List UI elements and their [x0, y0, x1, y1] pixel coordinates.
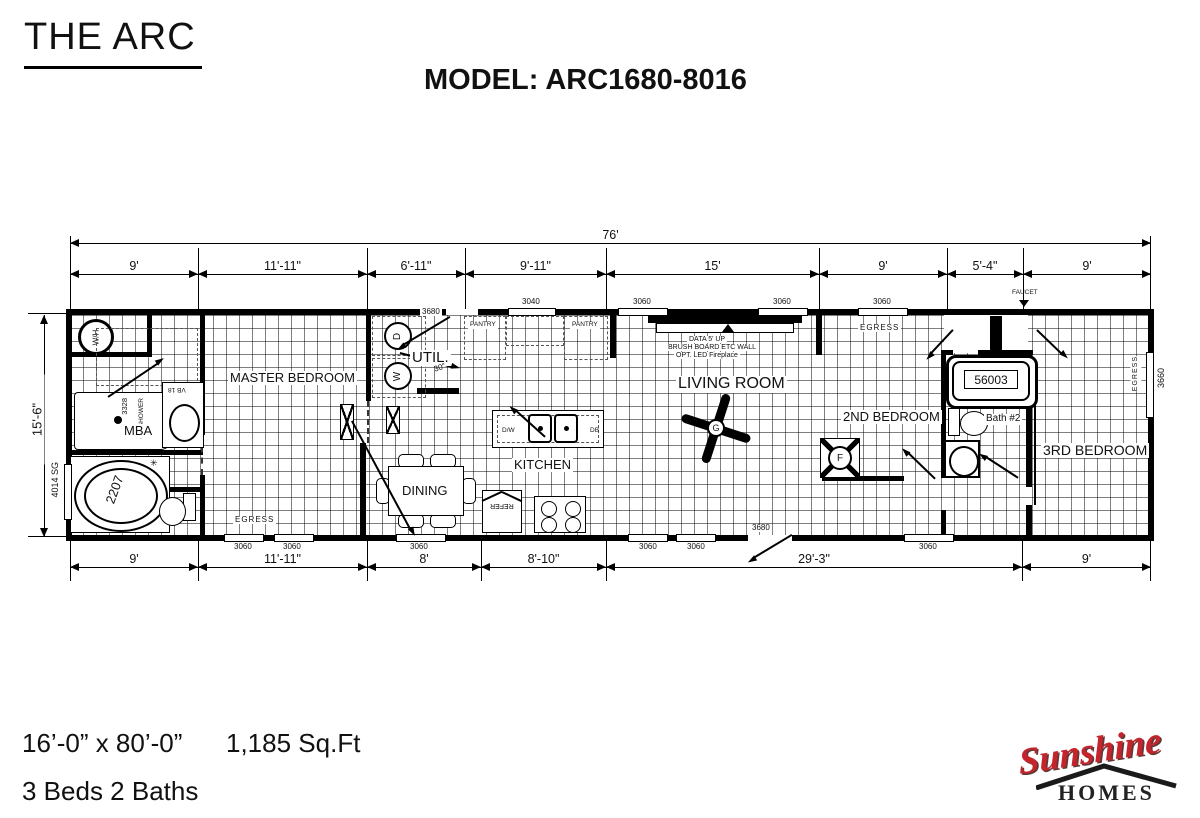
dim-bottom-6: 9' — [1022, 567, 1151, 568]
logo-sub-text: HOMES — [1058, 780, 1155, 806]
page-title: THE ARC — [24, 16, 202, 69]
faucet-label: FAUCET — [1010, 290, 1040, 297]
util-master-wall — [366, 313, 371, 401]
outer-wall-right — [1148, 309, 1154, 541]
bath2-toilet-tank — [948, 408, 960, 436]
tick — [819, 248, 820, 309]
tick — [367, 541, 368, 581]
db-label: DB — [588, 428, 601, 435]
room-label-master: MASTER BEDROOM — [228, 371, 357, 385]
win-label-3060-c: 3060 — [871, 298, 893, 306]
master-dining-wall — [360, 443, 366, 537]
tick — [606, 541, 607, 581]
win-label-3060-f: 3060 — [408, 543, 430, 551]
window-3060-master-a — [224, 534, 264, 542]
room-label-mba: MBA — [122, 424, 154, 438]
mba-master-wall-lower — [200, 475, 205, 537]
tick — [1022, 541, 1023, 581]
dining-chair-bottom-right — [430, 514, 456, 528]
refrigerator-label: REFER — [490, 502, 514, 509]
shower-drain — [114, 416, 122, 424]
tick — [606, 248, 607, 309]
dim-top-2: 11'-11" — [198, 274, 367, 275]
media-wall-bar — [648, 315, 802, 323]
tick — [465, 248, 466, 309]
tick — [28, 536, 66, 537]
window-3060-master-b — [274, 534, 314, 542]
bath2-bed3-wall-lower — [1026, 505, 1032, 537]
master-closet-front — [367, 401, 369, 443]
dim-top-3: 6'-11" — [367, 274, 465, 275]
win-label-3060-e: 3060 — [281, 543, 303, 551]
pantry-right-label: PANTRY — [570, 322, 600, 329]
mba-tub-wall — [68, 450, 203, 455]
burner-2 — [565, 501, 581, 517]
win-label-3680-rear: 3680 — [750, 524, 772, 532]
dim-overall-height-label: 15'-6" — [30, 375, 45, 465]
dim-overall-width: 76' — [70, 243, 1151, 244]
front-door-opening — [446, 309, 478, 315]
sink-right-drain — [564, 426, 569, 431]
mba-vanity-label: VB 18 — [168, 386, 186, 393]
egress-label-master: EGRESS — [233, 516, 276, 524]
bath2-left-wall-lower — [941, 510, 946, 537]
burner-1 — [541, 501, 557, 517]
dim-top-4: 9'-11" — [465, 274, 606, 275]
win-label-3060-b: 3060 — [771, 298, 793, 306]
room-label-dining: DINING — [400, 484, 450, 498]
egress-label-bed2: EGRESS — [858, 324, 901, 332]
window-3040 — [508, 308, 556, 316]
master-closet-shelf — [96, 328, 198, 386]
window-3060-living-a — [628, 534, 668, 542]
tick — [1150, 236, 1151, 309]
sunshine-homes-logo: Sunshine HOMES — [1000, 728, 1180, 814]
win-label-3060-g: 3060 — [637, 543, 659, 551]
footer-beds-baths: 3 Beds 2 Baths — [22, 776, 198, 807]
win-label-3060-a: 3060 — [631, 298, 653, 306]
media-marker-icon — [722, 324, 734, 332]
model-number: MODEL: ARC1680-8016 — [424, 64, 747, 97]
tick — [1150, 541, 1151, 581]
fan-hub: G — [707, 419, 725, 437]
mba-sink — [169, 404, 200, 442]
window-3060-living-right — [758, 308, 808, 316]
window-4014-tub — [64, 464, 72, 520]
living-bed2-wall — [816, 313, 822, 355]
fan-hub-label: G — [712, 423, 719, 433]
win-label-4014: 4014 SG — [50, 462, 60, 498]
window-3660-bed3 — [1146, 352, 1154, 418]
closet-rod-2 — [386, 406, 400, 434]
furnace: F — [828, 446, 852, 470]
window-3060-dining — [396, 534, 446, 542]
dim-bottom-3: 8' — [367, 567, 481, 568]
dim-top-7: 5'-4" — [947, 274, 1023, 275]
pantry-return-wall — [610, 313, 616, 358]
tick — [70, 236, 71, 309]
hallway-area — [944, 315, 1028, 353]
window-3060-hall — [904, 534, 954, 542]
burner-4 — [565, 517, 581, 533]
wall-note-3: OPT. LED Fireplace — [674, 352, 740, 359]
wall-note-2: BRUSH BOARD ETC WALL — [666, 344, 758, 351]
tick — [198, 248, 199, 309]
win-label-3060-h: 3060 — [685, 543, 707, 551]
washer-label: W — [392, 371, 403, 380]
bath2-tub-size: 56003 — [964, 370, 1018, 389]
tick — [28, 313, 66, 314]
egress-label-bed3: EGRESS — [1130, 356, 1141, 391]
window-3060-living-left — [618, 308, 668, 316]
win-label-3040: 3040 — [520, 298, 542, 306]
tub-faucet-icon: ✳ — [150, 458, 158, 469]
dim-bottom-5: 29'-3" — [606, 567, 1022, 568]
room-label-living: LIVING ROOM — [676, 376, 787, 393]
tick — [198, 541, 199, 581]
tick — [70, 541, 71, 581]
kitchen-upper-cabinets — [506, 316, 564, 346]
dim-bottom-2: 11'-11" — [198, 567, 367, 568]
room-label-bath2: Bath #2 — [984, 414, 1022, 425]
washer: W — [384, 362, 412, 390]
dim-top-6: 9' — [819, 274, 947, 275]
shower-size-label: 3328 — [120, 398, 129, 415]
hall-jamb — [990, 316, 1002, 352]
footer-size: 16’-0” x 80’-0” — [22, 728, 182, 759]
tick — [947, 248, 948, 309]
dim-bottom-1: 9' — [70, 567, 198, 568]
dim-top-5: 15' — [606, 274, 819, 275]
dryer-label: D — [392, 332, 403, 339]
tick — [367, 248, 368, 309]
dishwasher-label: D/W — [500, 428, 517, 435]
tick — [481, 541, 482, 581]
furnace-label: F — [837, 453, 843, 464]
dim-top-1: 9' — [70, 274, 198, 275]
room-label-kitchen: KITCHEN — [512, 458, 573, 472]
win-label-3060-d: 3060 — [232, 543, 254, 551]
dim-bottom-4: 8'-10" — [481, 567, 606, 568]
dining-chair-right — [462, 478, 476, 504]
pantry-left-label: PANTRY — [468, 322, 498, 329]
footer-sqft: 1,185 Sq.Ft — [226, 728, 360, 759]
room-label-bed3: 3RD BEDROOM — [1041, 443, 1149, 458]
room-label-bed2: 2ND BEDROOM — [841, 410, 942, 424]
mba-toilet-bowl — [159, 497, 186, 526]
dim-overall-width-label: 76' — [598, 228, 622, 242]
win-label-3680-front: 3680 — [420, 308, 442, 316]
wall-note-1: DATA 5' UP — [687, 336, 727, 343]
win-label-3660: 3660 — [1156, 368, 1166, 388]
window-3060-bed2 — [858, 308, 908, 316]
tick — [1023, 248, 1024, 309]
dim-top-8: 9' — [1023, 274, 1151, 275]
win-label-3060-i: 3060 — [917, 543, 939, 551]
floorplan-page: THE ARC MODEL: ARC1680-8016 W/H 3328 60"… — [0, 0, 1200, 818]
window-3060-living-b — [676, 534, 716, 542]
burner-3 — [541, 517, 557, 533]
